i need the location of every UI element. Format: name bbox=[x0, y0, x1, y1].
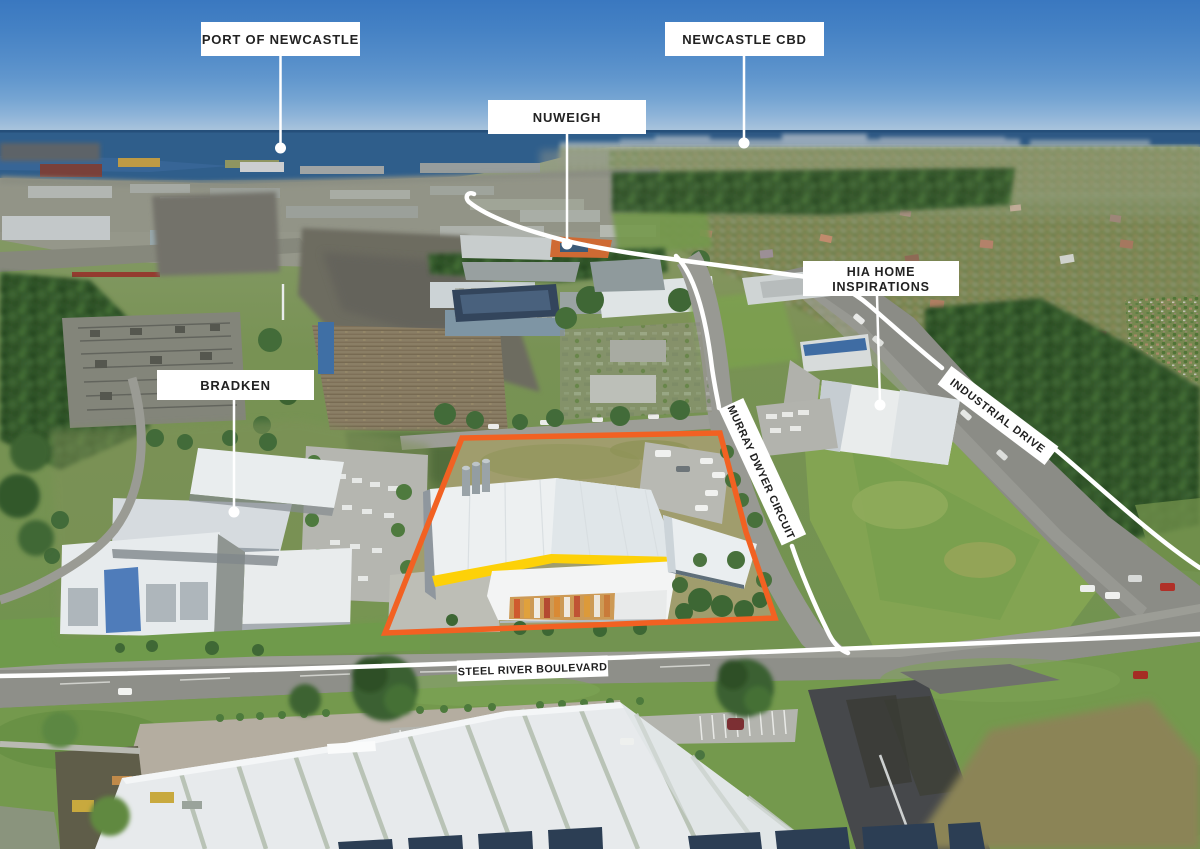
svg-text:PORT OF NEWCASTLE: PORT OF NEWCASTLE bbox=[202, 32, 359, 47]
svg-text:HIA HOME: HIA HOME bbox=[847, 265, 915, 279]
svg-text:BRADKEN: BRADKEN bbox=[200, 378, 271, 393]
svg-text:NUWEIGH: NUWEIGH bbox=[533, 110, 601, 125]
svg-text:INSPIRATIONS: INSPIRATIONS bbox=[832, 280, 930, 294]
svg-text:NEWCASTLE CBD: NEWCASTLE CBD bbox=[682, 32, 807, 47]
